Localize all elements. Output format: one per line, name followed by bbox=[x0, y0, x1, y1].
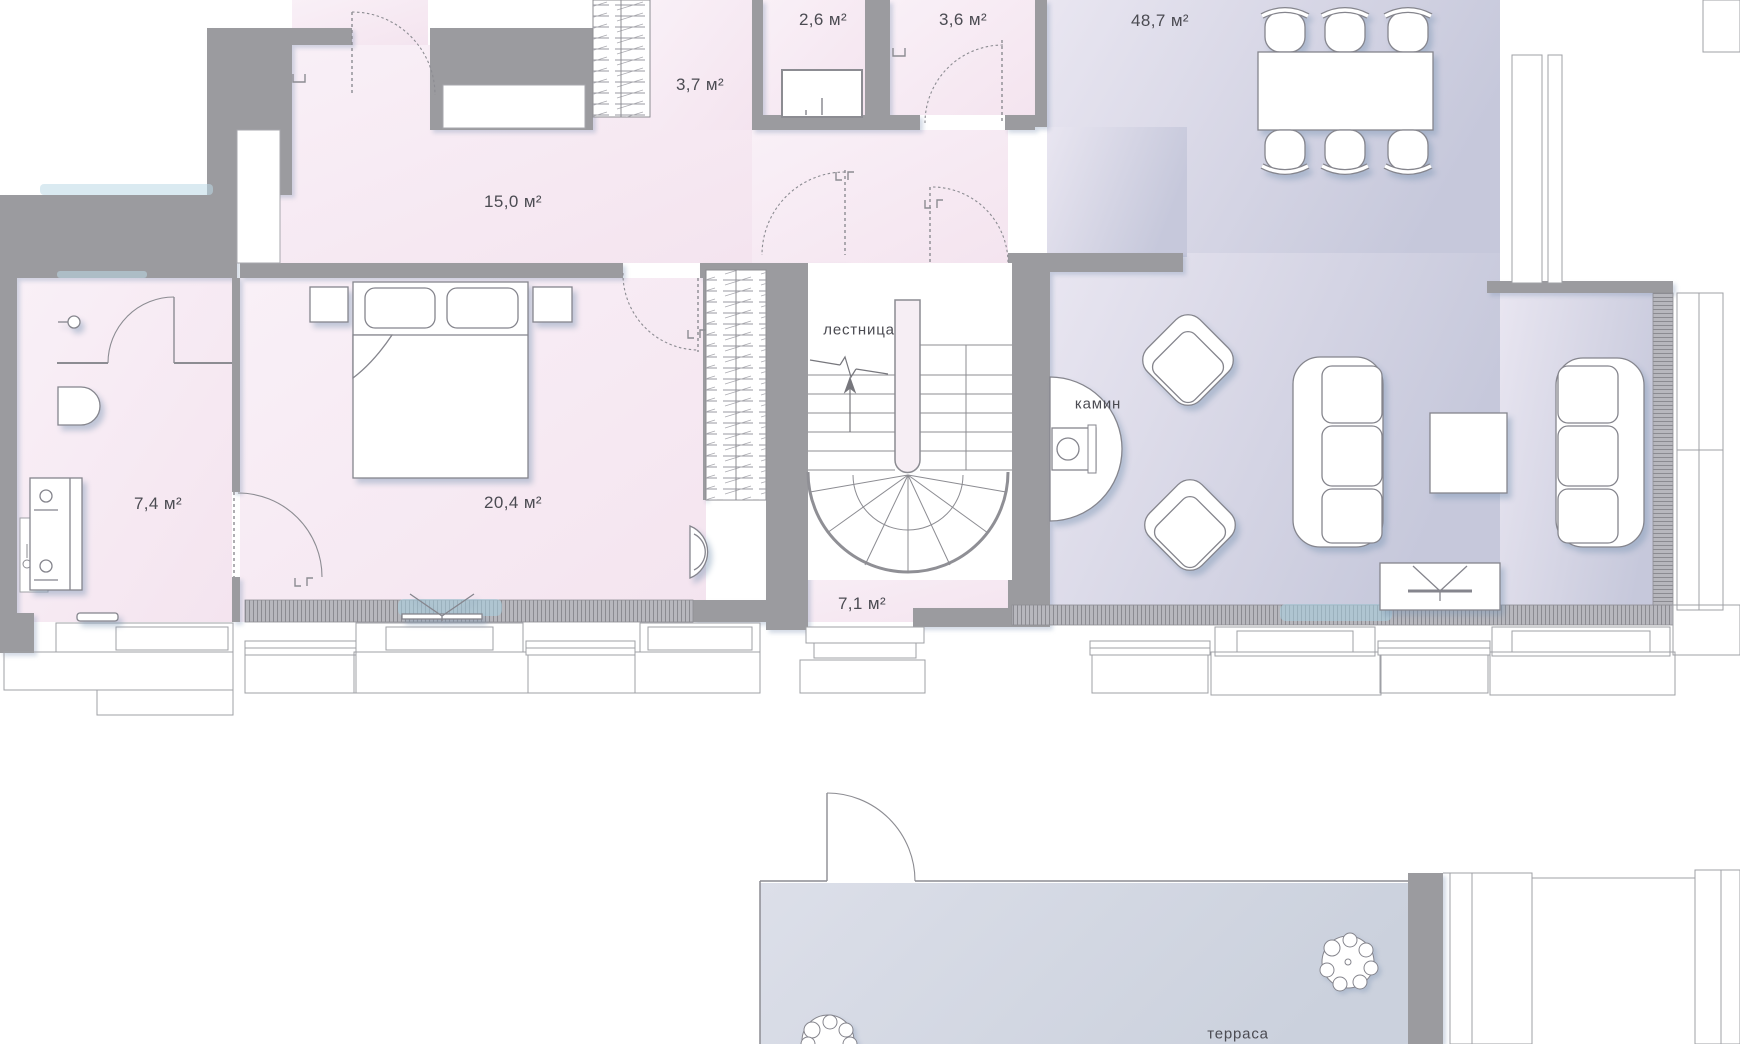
toilet-icon bbox=[58, 387, 100, 425]
wall-north-strip bbox=[292, 28, 352, 45]
wall-fireplace-column bbox=[1008, 253, 1050, 627]
wall-bathroom-right-upper bbox=[232, 278, 240, 492]
wall-living-door-strip bbox=[1050, 253, 1183, 272]
window-northeast-1 bbox=[1512, 55, 1542, 283]
wall-bedroom-window-jamb bbox=[693, 600, 766, 622]
wall-terrace-right bbox=[1408, 873, 1443, 1044]
corridor-floor bbox=[752, 130, 1008, 263]
terrace-door bbox=[827, 793, 915, 881]
room-area-label-living: 48,7 м² bbox=[1131, 11, 1189, 31]
tv-stand-icon bbox=[1380, 563, 1500, 610]
dining-group bbox=[1258, 10, 1433, 172]
staircase bbox=[808, 263, 1012, 580]
wall-stair-left bbox=[766, 263, 808, 630]
vanity-icon bbox=[30, 478, 82, 590]
wall-bedroom-top-jamb bbox=[700, 263, 706, 278]
wall-west bbox=[0, 195, 17, 653]
sill-living-east bbox=[1653, 293, 1673, 605]
wall-storage-bottom-jamb bbox=[1005, 115, 1035, 130]
bed-icon bbox=[353, 282, 528, 478]
room-area-label-hallway: 15,0 м² bbox=[484, 192, 542, 212]
room-area-label-bathroom: 7,4 м² bbox=[134, 494, 182, 514]
wall-bedroom-top bbox=[240, 263, 623, 278]
facade-windows-south bbox=[4, 623, 1675, 715]
room-area-label-stair-hall: 7,1 м² bbox=[838, 594, 886, 614]
floor-plan-page: 15,0 м² 3,7 м² 2,6 м² 3,6 м² 48,7 м² 7,4… bbox=[0, 0, 1740, 1044]
wc-shelf-icon bbox=[782, 70, 862, 117]
wall-fixture-icon bbox=[68, 316, 80, 328]
dining-table-icon bbox=[1258, 52, 1433, 130]
hall-wardrobe bbox=[593, 0, 650, 117]
room-area-label-closet: 3,7 м² bbox=[676, 75, 724, 95]
nightstand-right-icon bbox=[533, 287, 572, 322]
bedroom-wardrobe bbox=[706, 270, 766, 500]
nightstand-left-icon bbox=[310, 287, 348, 322]
sofa-icon bbox=[1556, 358, 1644, 547]
wall-wc-storage bbox=[865, 0, 890, 130]
fireplace-label: камин bbox=[1075, 396, 1121, 413]
window-northeast-corner bbox=[1703, 0, 1740, 52]
room-area-label-wc: 2,6 м² bbox=[799, 10, 847, 30]
terrace-area bbox=[760, 870, 1740, 1044]
wall-stair-bottom bbox=[913, 608, 1012, 627]
dining-chairs-top bbox=[1262, 10, 1431, 52]
floor-plan-drawing bbox=[0, 0, 1740, 1044]
hall-niche bbox=[443, 85, 585, 128]
terrace-label: терраса bbox=[1207, 1026, 1269, 1043]
room-area-label-storage: 3,6 м² bbox=[939, 10, 987, 30]
stair-spine bbox=[895, 300, 920, 473]
windowsill-bench-icon bbox=[77, 613, 118, 621]
staircase-label: лестница bbox=[823, 322, 894, 339]
wall-bathroom-right-lower bbox=[232, 577, 240, 622]
dining-chairs-bottom bbox=[1262, 130, 1431, 172]
wall-wc-left bbox=[752, 0, 763, 130]
shaft-niche bbox=[237, 130, 280, 263]
terrace-floor bbox=[760, 883, 1408, 1044]
sofa-icon bbox=[1293, 357, 1383, 547]
wall-storage-right bbox=[1035, 0, 1047, 127]
wall-topleft-block bbox=[7, 195, 237, 278]
stair-window bbox=[806, 627, 924, 643]
coffee-table-icon bbox=[1430, 413, 1507, 493]
room-area-label-bedroom: 20,4 м² bbox=[484, 493, 542, 513]
closet-room-floor bbox=[650, 0, 752, 130]
wall-west-foot bbox=[0, 613, 34, 653]
